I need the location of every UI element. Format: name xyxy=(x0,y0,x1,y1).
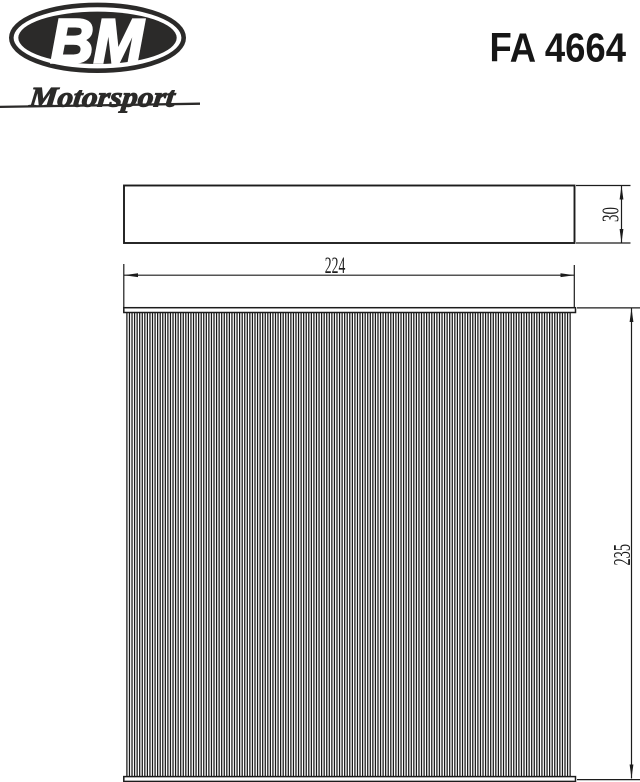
svg-text:30: 30 xyxy=(598,207,624,222)
svg-text:235: 235 xyxy=(610,544,636,566)
svg-text:Motorsport: Motorsport xyxy=(27,83,178,114)
svg-text:224: 224 xyxy=(325,253,346,278)
svg-text:BM: BM xyxy=(51,7,145,76)
svg-text:FA 4664: FA 4664 xyxy=(490,25,627,71)
